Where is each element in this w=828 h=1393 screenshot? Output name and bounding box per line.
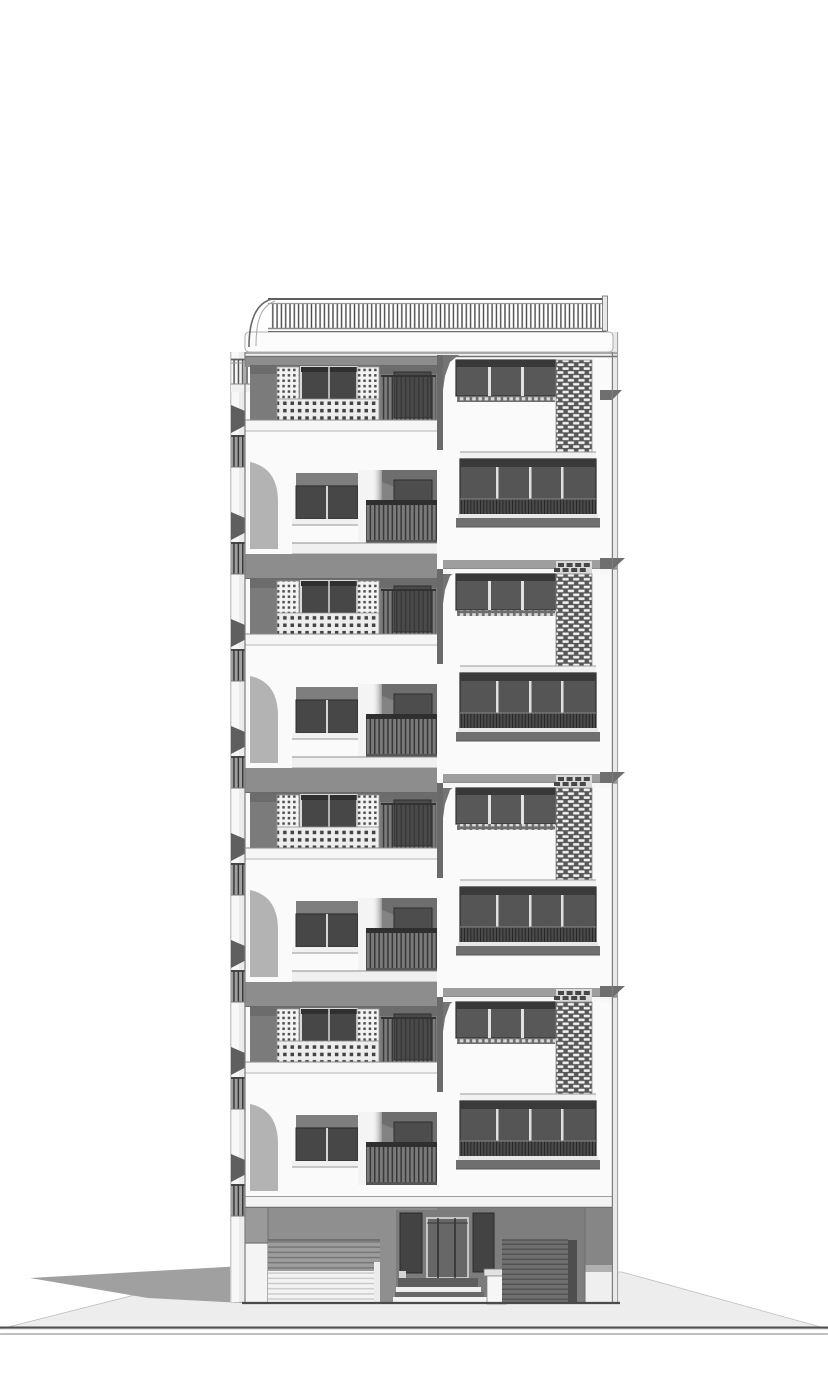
- window-mullion: [561, 467, 564, 499]
- window-sill: [292, 519, 362, 525]
- balcony-rail-top: [366, 714, 437, 719]
- step-tread: [396, 1287, 481, 1292]
- garage-shutter-right: [502, 1240, 568, 1302]
- window-mullion: [488, 581, 491, 610]
- ground-slab: [245, 1196, 612, 1208]
- jali-vent-row: [556, 775, 592, 788]
- window-mullion: [529, 681, 532, 713]
- band-sill: [460, 1094, 596, 1101]
- notch-recess: [437, 783, 443, 878]
- balcony-rail-top: [366, 500, 437, 505]
- balcony-slab: [292, 543, 437, 554]
- garage-left: [268, 1240, 380, 1302]
- entrance-side-panel-right: [473, 1213, 494, 1272]
- step-riser: [398, 1278, 478, 1287]
- garage-jamb: [374, 1262, 380, 1302]
- garage-right: [502, 1240, 577, 1302]
- lattice-balustrade: [277, 827, 379, 848]
- notch-recess: [437, 569, 443, 664]
- balcony-slab: [292, 757, 437, 768]
- parapet-cap: [245, 1062, 437, 1073]
- jali-screen: [556, 574, 592, 672]
- balcony-slat-railing: [366, 719, 437, 754]
- balcony-canopy: [245, 554, 437, 579]
- corner-pier-left: [245, 1208, 268, 1243]
- balcony-railing: [460, 1141, 596, 1156]
- window-sill: [292, 947, 362, 953]
- window-mullion: [529, 467, 532, 499]
- window-mullion: [488, 367, 491, 396]
- jali-screen: [556, 788, 592, 886]
- notch-recess: [437, 355, 443, 450]
- door-plate: [399, 1271, 406, 1278]
- vent-strip: [457, 824, 555, 830]
- balcony-slat-railing: [366, 933, 437, 968]
- jali-vent-row: [556, 989, 592, 1002]
- lattice-balustrade: [277, 613, 379, 634]
- window-mullion: [529, 895, 532, 927]
- balcony-rail-top: [366, 1142, 437, 1147]
- garage-shadow-edge: [568, 1240, 577, 1302]
- window-mullion: [521, 795, 524, 824]
- balcony-bar-railing: [381, 376, 436, 420]
- slab-stub: [600, 390, 622, 400]
- roof-railing-end-post: [603, 296, 608, 331]
- balcony-canopy: [245, 768, 437, 793]
- building-elevation-svg: [0, 0, 828, 1393]
- jali-vent-row: [556, 561, 592, 574]
- entrance-side-panel-left: [400, 1213, 422, 1273]
- jali-screen: [556, 360, 592, 458]
- balcony-slab-dark: [456, 732, 600, 741]
- window-mullion: [521, 581, 524, 610]
- parapet-cap: [245, 848, 437, 859]
- step-riser: [395, 1292, 484, 1297]
- entry-steps: [393, 1278, 488, 1303]
- ground-floor: [242, 1196, 620, 1304]
- jali-screen: [556, 1002, 592, 1100]
- corner-pier-right: [585, 1208, 612, 1265]
- garage-shutter-left-upper: [268, 1240, 380, 1271]
- window-mullion: [488, 1009, 491, 1038]
- elevation-render: [0, 0, 828, 1393]
- window-mullion: [561, 681, 564, 713]
- window-shutter-box: [296, 1115, 358, 1128]
- balcony-slat-railing: [366, 1147, 437, 1182]
- window-shutter-box: [296, 687, 358, 700]
- window-mullion: [496, 895, 499, 927]
- window-mullion: [496, 681, 499, 713]
- balcony-railing: [460, 499, 596, 514]
- vent-strip: [457, 610, 555, 616]
- window-mullion: [521, 1009, 524, 1038]
- roof-railing-balusters: [270, 303, 604, 328]
- balcony-slab-dark: [456, 1160, 600, 1169]
- window-mullion: [488, 795, 491, 824]
- garage-shutter-left-lower: [268, 1271, 380, 1302]
- window-mullion: [496, 1109, 499, 1141]
- balcony-bar-railing: [381, 804, 436, 848]
- balcony-rail-top: [366, 928, 437, 933]
- lattice-balustrade: [277, 1041, 379, 1062]
- vent-strip: [457, 1038, 555, 1044]
- band-sill: [460, 452, 596, 459]
- entrance-door: [427, 1218, 468, 1278]
- balcony-railing: [460, 713, 596, 728]
- balcony-canopy: [245, 982, 437, 1007]
- window-mullion: [521, 367, 524, 396]
- window-mullion: [496, 467, 499, 499]
- parapet-cap: [245, 634, 437, 645]
- window-mullion: [561, 1109, 564, 1141]
- balcony-slab-dark: [456, 518, 600, 527]
- parapet-cap: [245, 420, 437, 431]
- vent-strip: [457, 396, 555, 402]
- balcony-slat-railing: [366, 505, 437, 540]
- window-mullion: [529, 1109, 532, 1141]
- balcony-railing: [460, 927, 596, 942]
- window-shutter-box: [296, 901, 358, 914]
- balcony-slab-dark: [456, 946, 600, 955]
- window-sill: [292, 1161, 362, 1167]
- roof-parapet: [245, 332, 613, 352]
- balcony-bar-railing: [381, 1018, 436, 1062]
- band-sill: [460, 666, 596, 673]
- window-mullion: [561, 895, 564, 927]
- notch-recess: [437, 997, 443, 1092]
- band-sill: [460, 880, 596, 887]
- window-sill: [292, 733, 362, 739]
- lattice-balustrade: [277, 399, 379, 420]
- window-shutter-box: [296, 473, 358, 486]
- balcony-bar-railing: [381, 590, 436, 634]
- balcony-slab: [292, 971, 437, 982]
